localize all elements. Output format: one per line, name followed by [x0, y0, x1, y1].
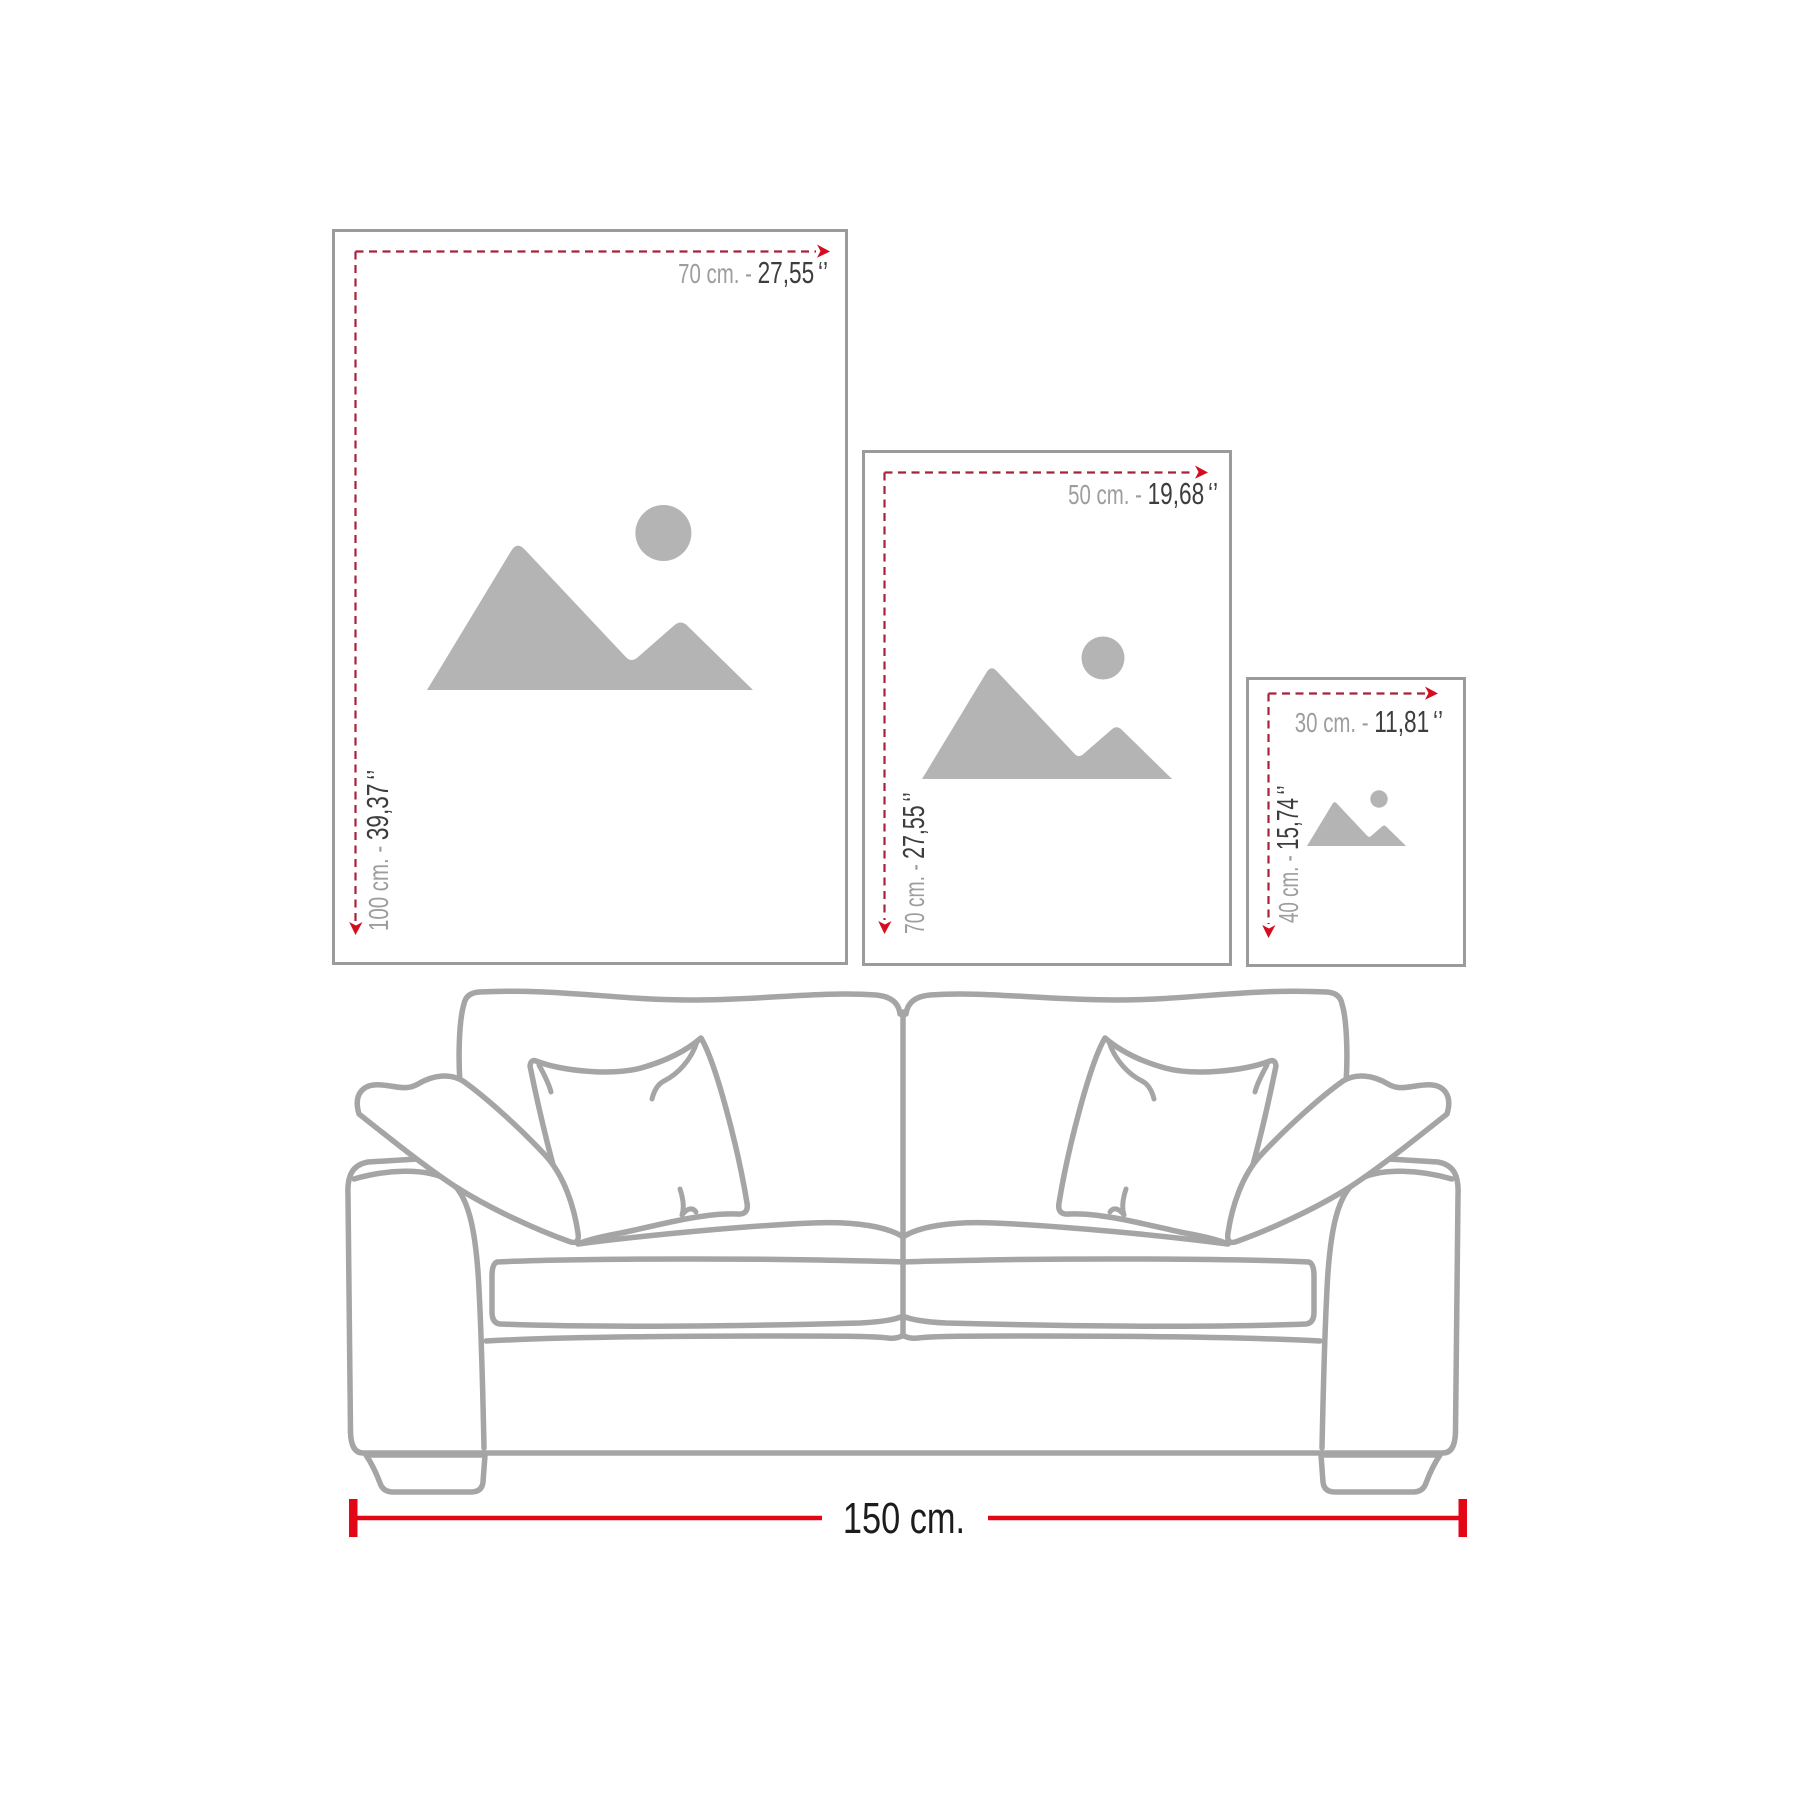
svg-text:50 cm. - 19,68 ‘’: 50 cm. - 19,68 ‘’ — [1068, 475, 1218, 510]
svg-text:30 cm. - 11,81 ‘’: 30 cm. - 11,81 ‘’ — [1295, 703, 1443, 738]
svg-text:150 cm.: 150 cm. — [843, 1495, 965, 1543]
svg-text:100 cm. - 39,37 ‘’: 100 cm. - 39,37 ‘’ — [359, 770, 394, 931]
svg-text:70 cm. - 27,55 ‘’: 70 cm. - 27,55 ‘’ — [678, 254, 828, 289]
svg-text:40 cm. - 15,74 ‘’: 40 cm. - 15,74 ‘’ — [1270, 785, 1305, 923]
svg-text:70 cm. - 27,55 ‘’: 70 cm. - 27,55 ‘’ — [896, 792, 931, 934]
